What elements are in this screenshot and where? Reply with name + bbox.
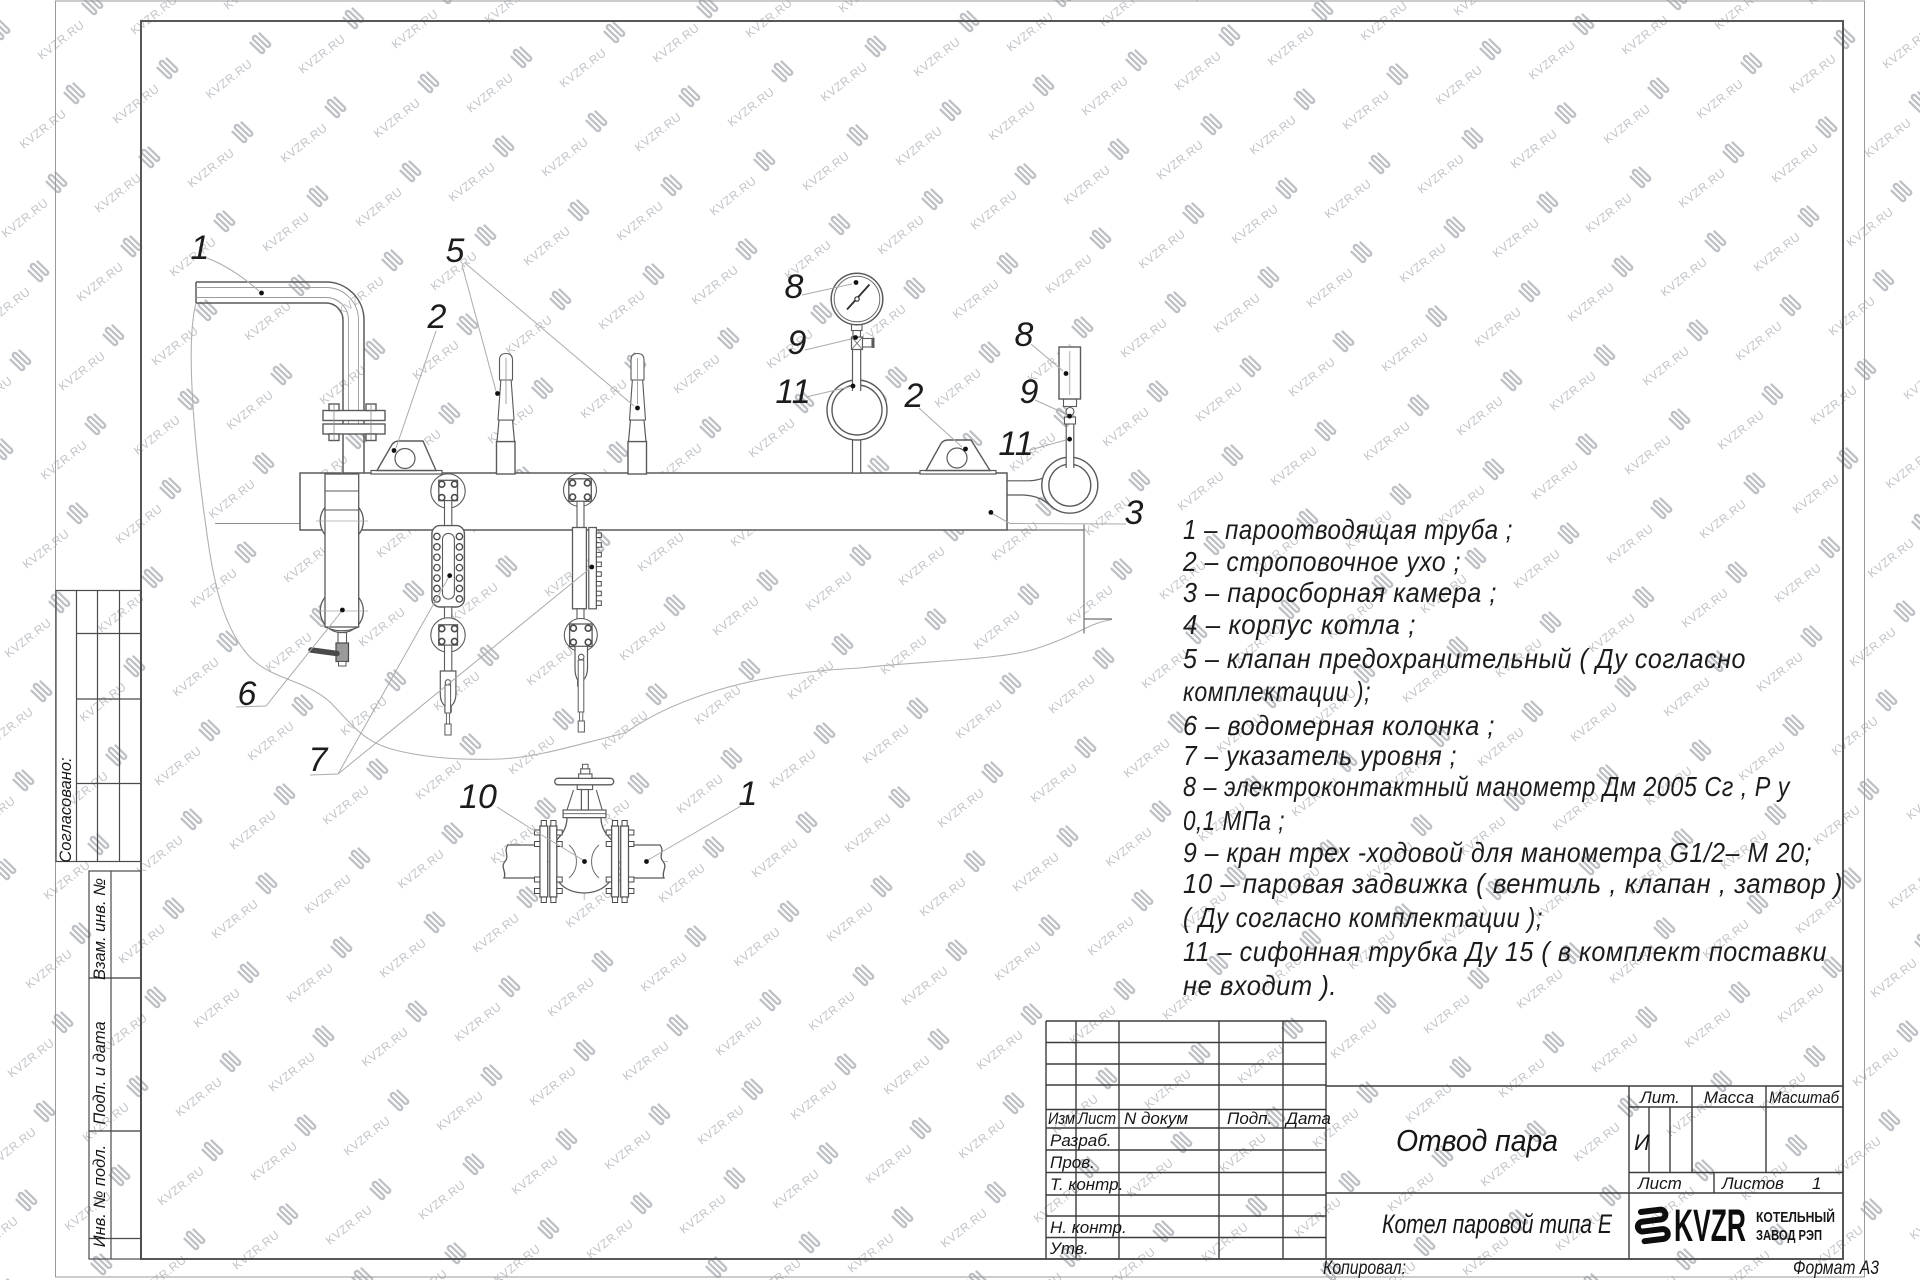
svg-text:комплектации );: комплектации ); <box>1183 676 1371 707</box>
svg-text:5 – клапан предохранительный: 5 – клапан предохранительный ( Ду соглас… <box>1183 643 1746 674</box>
svg-text:Листов: Листов <box>1721 1174 1784 1193</box>
svg-text:7 – указатель уровня ;: 7 – указатель уровня ; <box>1183 740 1457 771</box>
svg-text:Т. контр.: Т. контр. <box>1050 1175 1123 1194</box>
svg-text:7: 7 <box>309 741 329 779</box>
svg-text:3 – паросборная камера ;: 3 – паросборная камера ; <box>1183 577 1497 608</box>
svg-text:Копировал:: Копировал: <box>1323 1258 1406 1279</box>
svg-text:Лист: Лист <box>1637 1174 1682 1193</box>
svg-text:1: 1 <box>191 229 210 267</box>
svg-text:6 – водомерная колонка ;: 6 – водомерная колонка ; <box>1183 710 1495 741</box>
svg-text:1: 1 <box>739 775 758 813</box>
svg-text:8: 8 <box>1015 316 1034 354</box>
svg-text:Лист: Лист <box>1077 1109 1116 1128</box>
svg-text:8 – электроконтактный манометр: 8 – электроконтактный манометр Дм 2005 С… <box>1183 771 1791 802</box>
svg-text:1 – пароотводящая труба ;: 1 – пароотводящая труба ; <box>1183 514 1513 545</box>
svg-text:Котел паровой типа Е: Котел паровой типа Е <box>1382 1209 1612 1239</box>
svg-text:11: 11 <box>775 373 810 411</box>
svg-text:( Ду согласно комплектации );: ( Ду согласно комплектации ); <box>1183 902 1543 933</box>
svg-text:N докум: N докум <box>1124 1109 1188 1128</box>
svg-text:Подп. и дата: Подп. и дата <box>91 1021 109 1124</box>
svg-text:11 – сифонная трубка Ду 15 (: 11 – сифонная трубка Ду 15 ( в комплект … <box>1183 936 1827 967</box>
svg-text:Пров.: Пров. <box>1050 1153 1095 1172</box>
svg-text:2: 2 <box>427 298 447 336</box>
svg-text:KVZR: KVZR <box>1674 1200 1746 1251</box>
svg-text:11: 11 <box>998 425 1033 463</box>
svg-text:10: 10 <box>459 778 497 816</box>
svg-text:8: 8 <box>785 268 804 306</box>
svg-text:Масса: Масса <box>1704 1088 1754 1107</box>
svg-text:Изм: Изм <box>1048 1109 1075 1128</box>
svg-text:Дата: Дата <box>1284 1109 1331 1128</box>
svg-text:2 – строповочное ухо ;: 2 – строповочное ухо ; <box>1182 546 1461 577</box>
svg-text:Н. контр.: Н. контр. <box>1050 1218 1127 1237</box>
svg-text:9: 9 <box>1020 373 1039 411</box>
svg-text:КОТЕЛЬНЫЙ: КОТЕЛЬНЫЙ <box>1756 1208 1835 1226</box>
svg-text:6: 6 <box>238 675 257 713</box>
svg-text:Подп.: Подп. <box>1227 1109 1272 1128</box>
svg-text:Согласовано:: Согласовано: <box>57 757 75 862</box>
svg-text:Утв.: Утв. <box>1049 1239 1089 1258</box>
svg-text:4 – корпус котла ;: 4 – корпус котла ; <box>1183 609 1416 640</box>
svg-text:Взам. инв. №: Взам. инв. № <box>91 878 109 980</box>
svg-text:Разраб.: Разраб. <box>1050 1131 1112 1150</box>
svg-text:И: И <box>1634 1130 1650 1155</box>
svg-text:9: 9 <box>788 324 807 362</box>
svg-text:Отвод пара: Отвод пара <box>1396 1123 1558 1158</box>
svg-text:3: 3 <box>1125 494 1144 532</box>
svg-text:Масштаб: Масштаб <box>1769 1088 1840 1107</box>
svg-text:5: 5 <box>446 232 465 270</box>
svg-text:9 – кран трех -ходовой для ма: 9 – кран трех -ходовой для манометра G1/… <box>1183 837 1812 868</box>
svg-text:2: 2 <box>904 377 924 415</box>
svg-text:ЗАВОД РЭП: ЗАВОД РЭП <box>1756 1227 1822 1244</box>
svg-text:1: 1 <box>1812 1174 1821 1193</box>
svg-text:Лит.: Лит. <box>1639 1088 1680 1107</box>
svg-text:не входит ).: не входит ). <box>1183 970 1337 1001</box>
svg-text:10 – паровая задвижка ( вент: 10 – паровая задвижка ( вентиль , клапан… <box>1183 868 1843 899</box>
svg-text:Формат А3: Формат А3 <box>1793 1258 1879 1279</box>
svg-text:0,1 МПа ;: 0,1 МПа ; <box>1183 805 1285 836</box>
svg-text:Инв. № подл.: Инв. № подл. <box>91 1145 109 1247</box>
